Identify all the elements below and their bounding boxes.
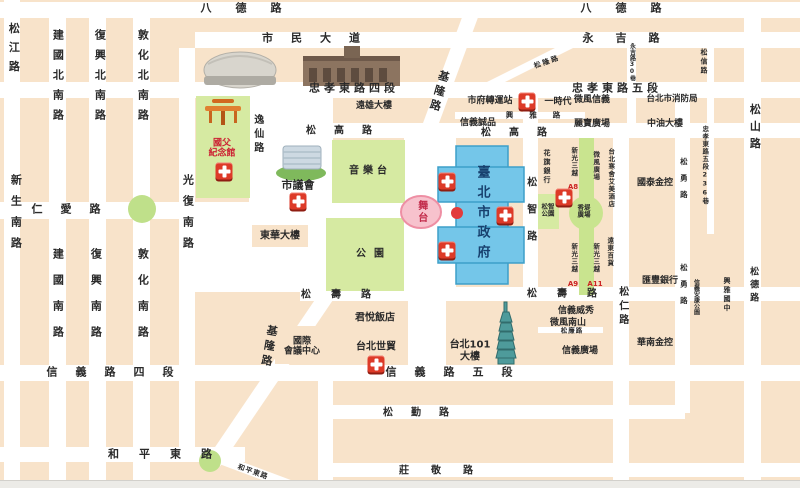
first-aid-cross-icon: [519, 93, 536, 110]
road-bade-w: 八德路: [201, 3, 306, 16]
road-jianguo-s: 建國南路: [51, 248, 64, 352]
place-citibank: 花旗銀行: [543, 149, 551, 185]
road-songjiang: 松江路: [7, 23, 20, 80]
place-breeze-square: 微風廣場: [591, 151, 598, 181]
place-music-stage: 音樂台: [349, 165, 391, 177]
road-xinsheng-s: 新生南路: [9, 174, 22, 258]
road-songyong-n: 松勇路: [679, 157, 688, 207]
road-jianguo-n: 建國北南路: [51, 29, 64, 129]
place-skm-a9-tag: A9: [568, 280, 578, 288]
dome-arena-image: [204, 52, 276, 88]
place-le-meridien: 台北寒舍艾美酒店: [606, 148, 613, 208]
place-skm-a9: 新光三越: [569, 243, 576, 273]
road-yongji-lane-30: 永吉路30巷: [628, 43, 635, 81]
stage-spot-marker: [451, 207, 463, 219]
place-twtc: 台北世貿: [356, 341, 396, 353]
place-stage: 舞台: [415, 200, 427, 224]
road-civic-blvd: 市民大道: [262, 33, 378, 46]
renai-roundabout: [128, 195, 156, 223]
place-ticc: 國際會議中心: [284, 337, 320, 358]
place-huanan-financial: 華南金控: [637, 338, 673, 348]
place-ankang-park: 信義安康公園: [692, 279, 699, 315]
road-songde: 松德路: [748, 267, 758, 306]
place-farglory-bldg: 遠雄大樓: [356, 101, 392, 111]
road-xingya: 興雅路: [506, 112, 577, 121]
road-dunhua-n: 敦化北南路: [136, 29, 149, 129]
place-xinyi-plaza: 信義廣場: [562, 346, 598, 356]
place-breeze-nanshan: 微風南山: [550, 318, 586, 328]
place-taipei-city-hall: 臺北市政府: [474, 165, 489, 265]
road-xinyi-5: 信義路五段: [386, 367, 531, 380]
first-aid-cross-icon: [556, 189, 573, 206]
road-songyong-s: 松勇路: [679, 263, 688, 313]
road-yixian: 逸仙路: [251, 114, 263, 156]
place-vieshow: 信義威秀: [558, 306, 594, 316]
road-xinyi-4: 信義路四段: [47, 367, 192, 380]
first-aid-cross-icon: [439, 173, 456, 190]
road-songshou-e: 松壽路: [527, 288, 617, 300]
place-grand-hyatt: 君悅飯店: [355, 312, 395, 324]
road-zhuangjing: 莊敬路: [399, 465, 495, 477]
road-songshou-w: 松壽路: [301, 289, 391, 301]
place-cathay-financial: 國泰金控: [637, 178, 673, 188]
road-fuxing-n: 復興北南路: [93, 29, 106, 129]
place-cpc-bldg: 中油大樓: [647, 119, 683, 129]
road-renai: 仁愛路: [32, 204, 119, 217]
first-aid-cross-icon: [368, 356, 385, 373]
road-bade-e: 八德路: [581, 3, 686, 16]
place-skm-a11-tag: A11: [587, 280, 602, 288]
place-songzhi-park: 松智公園: [542, 204, 555, 219]
city-council-building-image: [276, 146, 326, 181]
place-hsbc: 匯豐銀行: [642, 276, 678, 286]
road-guangfu-s: 光復南路: [181, 174, 194, 258]
place-city-hall-bus-station: 市府轉運站: [467, 96, 512, 106]
road-songgao-w: 松高路: [306, 125, 390, 137]
place-xingya-junior-high: 興雅國中: [723, 277, 731, 313]
first-aid-cross-icon: [290, 193, 307, 210]
road-zhongxiao-e-4: 忠孝東路四段: [309, 83, 399, 96]
place-breeze-xinyi: 微風信義: [574, 95, 610, 105]
place-shianti-plaza: 香堤廣場: [578, 205, 591, 220]
road-dunhua-s: 敦化南路: [136, 248, 149, 352]
place-sys-memorial: 國父紀念館: [208, 139, 235, 160]
place-feds-dept: 遠東百貨: [605, 237, 612, 267]
road-songshan: 松山路: [748, 104, 761, 155]
place-skm-a8: 新光三越: [569, 147, 576, 177]
place-uni-ustyle: 一時代: [544, 97, 571, 107]
place-park: 公園: [356, 248, 392, 260]
place-libao-plaza: 麗寶廣場: [574, 119, 610, 129]
road-heping-e: 和平東路: [108, 449, 232, 462]
road-songren: 松仁路: [616, 286, 628, 328]
place-donghua-bldg: 東華大樓: [260, 230, 300, 242]
first-aid-cross-icon: [216, 163, 233, 180]
map-bottom-border: [0, 480, 800, 488]
first-aid-cross-icon: [497, 207, 514, 224]
place-taipei-101: 台北101大樓: [450, 340, 491, 363]
taipei-xinyi-tourist-map: 八德路八德路市民大道永吉路忠孝東路四段忠孝東路五段松高路松高路仁愛路信義路四段信…: [0, 0, 800, 488]
road-songlian: 松廉路: [561, 327, 584, 334]
road-songxin: 松信路: [700, 49, 708, 76]
road-zhongxiao-236-lane: 忠孝東路五段236巷: [700, 125, 707, 205]
road-songzhi: 松智路: [524, 177, 536, 258]
road-fuxing-s: 復興南路: [89, 248, 102, 352]
place-city-council: 市議會: [282, 180, 315, 193]
road-songqin: 松勤路: [383, 407, 467, 419]
first-aid-cross-icon: [439, 242, 456, 259]
place-skm-a11: 新光三越: [591, 243, 598, 273]
road-songgao-e: 松高路: [481, 127, 565, 139]
place-eslite-xinyi: 信義誠品: [460, 118, 496, 128]
place-fire-dept: 台北市消防局: [646, 95, 697, 105]
